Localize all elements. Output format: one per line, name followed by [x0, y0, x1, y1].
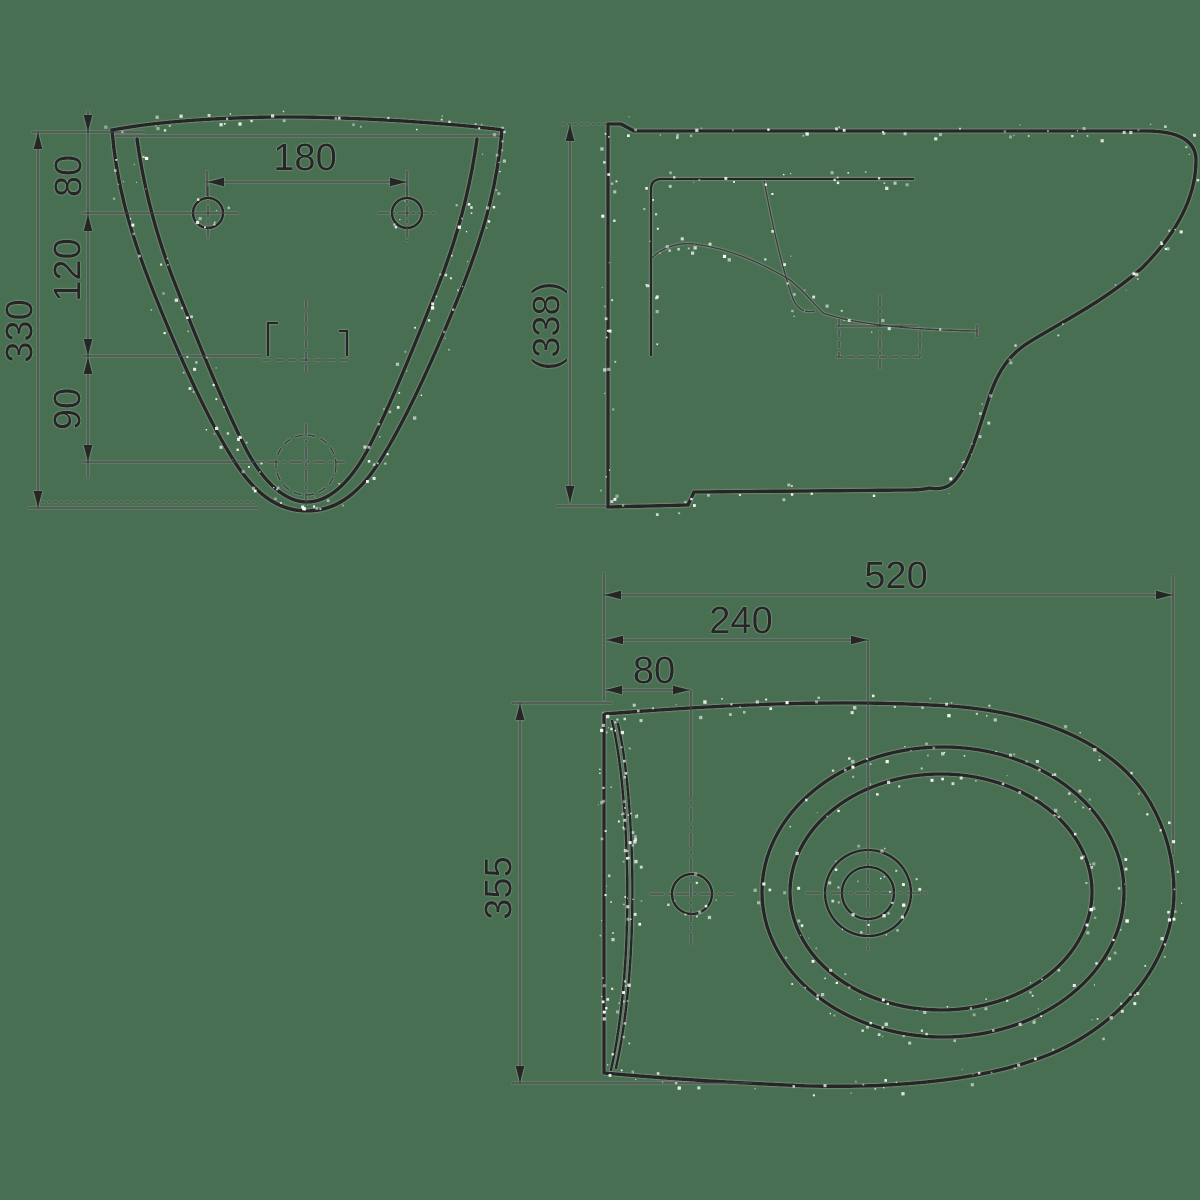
speckle-dot	[921, 768, 923, 770]
speckle-dot	[1057, 334, 1059, 336]
speckle-dot	[883, 1087, 885, 1089]
speckle-dot	[976, 713, 978, 715]
speckle-dot	[499, 162, 500, 163]
speckle-dot	[624, 718, 627, 721]
speckle-dot	[1058, 816, 1060, 818]
speckle-dot	[132, 233, 135, 236]
speckle-dot	[237, 449, 239, 451]
speckle-dot	[724, 177, 727, 180]
speckle-dot	[847, 172, 849, 174]
speckle-dot	[630, 813, 632, 815]
speckle-dot	[916, 878, 918, 880]
speckle-dot	[660, 135, 661, 136]
speckle-dot	[602, 977, 604, 979]
speckle-dot	[442, 115, 443, 116]
speckle-dot	[791, 485, 793, 487]
speckle-dot	[214, 434, 215, 435]
speckle-dot	[1077, 130, 1078, 131]
speckle-dot	[610, 728, 612, 730]
speckle-dot	[923, 1011, 926, 1014]
speckle-dot	[982, 403, 983, 404]
speckle-dot	[656, 513, 659, 516]
speckle-dot	[842, 929, 843, 930]
speckle-dot	[707, 494, 710, 497]
speckle-dot	[793, 1085, 796, 1088]
speckle-dot	[611, 988, 613, 990]
speckle-dot	[894, 706, 896, 708]
speckle-dot	[815, 701, 818, 704]
speckle-dot	[327, 499, 330, 502]
speckle-dot	[396, 363, 399, 366]
speckle-dot	[475, 123, 477, 125]
speckle-dot	[606, 476, 607, 477]
speckle-dot	[610, 500, 613, 503]
speckle-dot	[841, 310, 843, 312]
speckle-dot	[896, 929, 899, 932]
speckle-dot	[817, 812, 818, 813]
speckle-dot	[1006, 1000, 1008, 1002]
speckle-dot	[614, 361, 616, 363]
speckle-dot	[431, 302, 434, 305]
speckle-dot	[406, 370, 407, 371]
speckle-dot	[399, 219, 400, 220]
speckle-dot	[196, 221, 199, 224]
speckle-dot	[699, 716, 702, 719]
speckle-dot	[673, 176, 676, 179]
speckle-dot	[979, 412, 982, 415]
speckle-dot	[884, 182, 886, 184]
speckle-dot	[1137, 278, 1139, 280]
speckle-dot	[486, 227, 488, 229]
speckle-dot	[1095, 962, 1097, 964]
speckle-dot	[882, 1036, 883, 1037]
speckle-dot	[694, 873, 697, 876]
speckle-dot	[862, 1084, 864, 1086]
speckle-dot	[622, 813, 624, 815]
speckle-dot	[1030, 982, 1031, 983]
speckle-dot	[1053, 814, 1055, 816]
speckle-dot	[832, 770, 834, 772]
speckle-dot	[625, 772, 628, 775]
speckle-dot	[652, 199, 654, 201]
speckle-dot	[973, 1013, 976, 1016]
speckle-dot	[606, 337, 608, 339]
speckle-dot	[1082, 807, 1084, 809]
speckle-dot	[609, 262, 610, 263]
technical-drawing-page: 180 80 120 90 330 (338)	[0, 0, 1200, 1200]
speckle-dot	[767, 129, 769, 131]
speckle-dot	[627, 918, 630, 921]
speckle-dot	[1064, 725, 1067, 728]
speckle-dot	[482, 154, 483, 155]
speckle-dot	[811, 493, 813, 495]
speckle-dot	[910, 750, 911, 751]
speckle-dot	[821, 993, 824, 996]
speckle-dot	[1177, 871, 1179, 873]
speckle-dot	[791, 493, 793, 495]
speckle-dot	[886, 934, 887, 935]
speckle-dot	[603, 161, 606, 164]
speckle-dot	[387, 117, 389, 119]
speckle-dot	[1118, 887, 1120, 889]
speckle-dot	[1124, 884, 1125, 885]
speckle-dot	[637, 710, 640, 713]
speckle-dot	[884, 876, 886, 878]
speckle-dot	[624, 849, 627, 852]
speckle-dot	[645, 187, 648, 190]
speckle-dot	[643, 208, 645, 210]
speckle-dot	[690, 135, 693, 138]
speckle-dot	[787, 484, 790, 487]
speckle-dot	[797, 887, 800, 890]
speckle-dot	[605, 133, 607, 135]
drawing-background	[0, 0, 1200, 1200]
speckle-dot	[607, 368, 610, 371]
speckle-dot	[669, 185, 672, 188]
speckle-dot	[622, 827, 624, 829]
speckle-dot	[892, 902, 894, 904]
speckle-dot	[602, 712, 604, 714]
speckle-dot	[721, 698, 723, 700]
speckle-dot	[1167, 247, 1170, 250]
speckle-dot	[635, 815, 638, 818]
speckle-dot	[1052, 774, 1054, 776]
speckle-dot	[730, 703, 732, 705]
speckle-dot	[1144, 965, 1146, 967]
speckle-dot	[812, 960, 815, 963]
speckle-dot	[503, 160, 506, 163]
speckle-dot	[599, 773, 600, 774]
speckle-dot	[971, 1083, 974, 1086]
speckle-dot	[828, 881, 831, 884]
speckle-dot	[884, 848, 886, 850]
speckle-dot	[496, 154, 499, 157]
speckle-dot	[1073, 984, 1076, 987]
speckle-dot	[1041, 979, 1043, 981]
speckle-dot	[685, 914, 687, 916]
speckle-dot	[142, 156, 144, 158]
speckle-dot	[612, 408, 614, 410]
speckle-dot	[615, 495, 618, 498]
speckle-dot	[466, 231, 467, 232]
speckle-dot	[389, 411, 392, 414]
front-dim-holes-to-jet: 120	[47, 238, 89, 301]
speckle-dot	[833, 1015, 835, 1017]
speckle-dot	[1004, 130, 1006, 132]
speckle-dot	[676, 134, 679, 137]
speckle-dot	[623, 861, 625, 863]
speckle-dot	[925, 1033, 927, 1035]
speckle-dot	[1079, 790, 1082, 793]
speckle-dot	[837, 810, 839, 812]
speckle-dot	[878, 177, 880, 179]
speckle-dot	[785, 957, 787, 959]
speckle-dot	[871, 332, 872, 333]
speckle-dot	[220, 446, 223, 449]
speckle-dot	[1036, 760, 1039, 763]
speckle-dot	[604, 393, 605, 394]
speckle-dot	[824, 978, 826, 980]
speckle-dot	[115, 159, 117, 161]
speckle-dot	[975, 780, 977, 782]
speckle-dot	[791, 983, 793, 985]
speckle-dot	[138, 255, 141, 258]
speckle-dot	[428, 319, 430, 321]
speckle-dot	[851, 760, 854, 763]
speckle-dot	[925, 743, 927, 745]
speckle-dot	[1089, 799, 1091, 801]
speckle-dot	[882, 999, 885, 1002]
speckle-dot	[862, 1030, 864, 1032]
speckle-dot	[145, 157, 147, 159]
speckle-dot	[878, 1033, 881, 1036]
speckle-dot	[757, 901, 760, 904]
speckle-dot	[844, 769, 847, 772]
speckle-dot	[765, 184, 767, 186]
speckle-dot	[601, 996, 602, 997]
speckle-dot	[880, 878, 881, 879]
speckle-dot	[623, 904, 624, 905]
speckle-dot	[1080, 732, 1081, 733]
speckle-dot	[872, 695, 875, 698]
speckle-dot	[843, 320, 844, 321]
speckle-dot	[1125, 919, 1128, 922]
speckle-dot	[887, 781, 890, 784]
speckle-dot	[1029, 991, 1031, 993]
speckle-dot	[1167, 911, 1170, 914]
speckle-dot	[630, 748, 632, 750]
speckle-dot	[782, 498, 785, 501]
speckle-dot	[1121, 1010, 1124, 1013]
speckle-dot	[826, 816, 828, 818]
speckle-dot	[160, 264, 162, 266]
speckle-dot	[640, 719, 643, 722]
plan-dim-overall-width: 355	[478, 856, 520, 919]
speckle-dot	[604, 306, 606, 308]
speckle-dot	[696, 882, 698, 884]
front-dim-overall-height: 330	[0, 299, 41, 362]
bidet-three-view-technical-drawing: 180 80 120 90 330 (338)	[0, 0, 1200, 1200]
speckle-dot	[949, 493, 950, 494]
speckle-dot	[691, 252, 694, 255]
speckle-dot	[1164, 125, 1167, 128]
speckle-dot	[666, 245, 669, 248]
speckle-dot	[652, 707, 654, 709]
speckle-dot	[608, 727, 609, 728]
speckle-dot	[888, 912, 890, 914]
speckle-dot	[413, 416, 416, 419]
speckle-dot	[1038, 769, 1040, 771]
speckle-dot	[495, 189, 497, 191]
speckle-dot	[445, 274, 448, 277]
speckle-dot	[493, 206, 495, 208]
speckle-dot	[1086, 924, 1089, 927]
speckle-dot	[181, 307, 183, 309]
speckle-dot	[813, 1094, 815, 1096]
speckle-dot	[481, 124, 483, 126]
speckle-dot	[694, 246, 697, 249]
speckle-dot	[629, 841, 632, 844]
speckle-dot	[602, 724, 605, 727]
speckle-dot	[1120, 1003, 1122, 1005]
speckle-dot	[885, 1023, 888, 1026]
speckle-dot	[501, 149, 503, 151]
speckle-dot	[121, 131, 123, 133]
plan-dim-overall-length: 520	[864, 555, 927, 597]
speckle-dot	[641, 900, 643, 902]
speckle-dot	[611, 787, 612, 788]
speckle-dot	[1120, 929, 1122, 931]
speckle-dot	[620, 746, 622, 748]
speckle-dot	[756, 700, 759, 703]
speckle-dot	[280, 502, 282, 504]
speckle-dot	[830, 1013, 831, 1014]
speckle-dot	[1058, 969, 1061, 972]
speckle-dot	[806, 132, 809, 135]
speckle-dot	[838, 901, 840, 903]
speckle-dot	[486, 206, 489, 209]
speckle-dot	[1034, 1019, 1036, 1021]
speckle-dot	[947, 1006, 948, 1007]
speckle-dot	[696, 916, 698, 918]
speckle-dot	[848, 986, 850, 988]
speckle-dot	[667, 904, 669, 906]
speckle-dot	[853, 706, 856, 709]
speckle-dot	[1009, 359, 1011, 361]
speckle-dot	[991, 1072, 993, 1074]
speckle-dot	[835, 869, 838, 872]
speckle-dot	[1180, 230, 1183, 233]
speckle-dot	[1164, 943, 1166, 945]
speckle-dot	[866, 758, 868, 760]
speckle-dot	[134, 164, 136, 166]
speckle-dot	[162, 292, 165, 295]
speckle-dot	[248, 466, 250, 468]
speckle-dot	[1168, 230, 1170, 232]
speckle-dot	[1136, 992, 1139, 995]
speckle-dot	[831, 171, 834, 174]
speckle-dot	[754, 889, 757, 892]
speckle-dot	[169, 125, 171, 127]
speckle-dot	[793, 316, 794, 317]
speckle-dot	[1185, 146, 1187, 148]
speckle-dot	[114, 169, 117, 172]
speckle-dot	[850, 1092, 851, 1093]
speckle-dot	[1092, 862, 1095, 865]
speckle-dot	[921, 1030, 923, 1032]
speckle-dot	[600, 935, 602, 937]
speckle-dot	[259, 471, 261, 473]
speckle-dot	[881, 319, 884, 322]
speckle-dot	[963, 461, 965, 463]
speckle-dot	[851, 766, 854, 769]
speckle-dot	[962, 1069, 963, 1070]
speckle-dot	[599, 769, 600, 770]
speckle-dot	[457, 289, 459, 291]
speckle-dot	[837, 177, 839, 179]
speckle-dot	[678, 1086, 681, 1089]
speckle-dot	[804, 290, 806, 292]
speckle-dot	[629, 1043, 631, 1045]
speckle-dot	[261, 463, 263, 465]
speckle-dot	[988, 705, 990, 707]
speckle-dot	[1085, 882, 1087, 884]
speckle-dot	[445, 338, 446, 339]
speckle-dot	[852, 913, 855, 916]
speckle-dot	[616, 719, 618, 721]
speckle-dot	[698, 911, 701, 914]
speckle-dot	[1112, 939, 1114, 941]
speckle-dot	[733, 181, 735, 183]
speckle-dot	[970, 1007, 972, 1009]
speckle-dot	[945, 703, 948, 706]
speckle-dot	[602, 1001, 605, 1004]
speckle-dot	[404, 200, 405, 201]
speckle-dot	[793, 293, 796, 296]
speckle-dot	[384, 463, 386, 465]
speckle-dot	[1014, 1067, 1016, 1069]
speckle-dot	[611, 299, 613, 301]
speckle-dot	[1038, 1008, 1039, 1009]
speckle-dot	[1099, 756, 1100, 757]
speckle-dot	[889, 891, 891, 893]
plan-dim-wall-to-drain: 240	[709, 600, 772, 642]
speckle-dot	[857, 881, 859, 883]
speckle-dot	[1017, 1064, 1020, 1067]
speckle-dot	[848, 319, 851, 322]
speckle-dot	[1123, 131, 1126, 134]
speckle-dot	[985, 1007, 988, 1010]
speckle-dot	[1089, 808, 1091, 810]
speckle-dot	[894, 182, 897, 185]
speckle-dot	[837, 182, 839, 184]
speckle-dot	[729, 713, 732, 716]
speckle-dot	[939, 328, 941, 330]
speckle-dot	[1007, 775, 1008, 776]
speckle-dot	[252, 487, 255, 490]
speckle-dot	[901, 1092, 904, 1095]
speckle-dot	[699, 179, 701, 181]
speckle-dot	[1165, 248, 1167, 250]
speckle-dot	[1110, 1016, 1113, 1019]
speckle-dot	[611, 183, 613, 185]
speckle-dot	[701, 128, 703, 130]
speckle-dot	[1138, 793, 1140, 795]
speckle-dot	[123, 181, 124, 182]
speckle-dot	[274, 498, 277, 501]
speckle-dot	[837, 886, 839, 888]
speckle-dot	[728, 258, 731, 261]
speckle-dot	[791, 310, 793, 312]
speckle-dot	[502, 141, 504, 143]
speckle-dot	[1054, 773, 1057, 776]
speckle-dot	[657, 1072, 660, 1075]
speckle-dot	[604, 1011, 606, 1013]
speckle-dot	[448, 349, 450, 351]
speckle-dot	[1094, 984, 1095, 985]
speckle-dot	[136, 182, 137, 183]
speckle-dot	[848, 757, 850, 759]
speckle-dot	[193, 391, 195, 393]
speckle-dot	[882, 1027, 884, 1029]
speckle-dot	[978, 1072, 981, 1075]
speckle-dot	[612, 1053, 614, 1055]
speckle-dot	[197, 198, 199, 200]
speckle-dot	[623, 760, 626, 763]
speckle-dot	[870, 784, 871, 785]
speckle-dot	[607, 330, 609, 332]
speckle-dot	[1082, 855, 1085, 858]
